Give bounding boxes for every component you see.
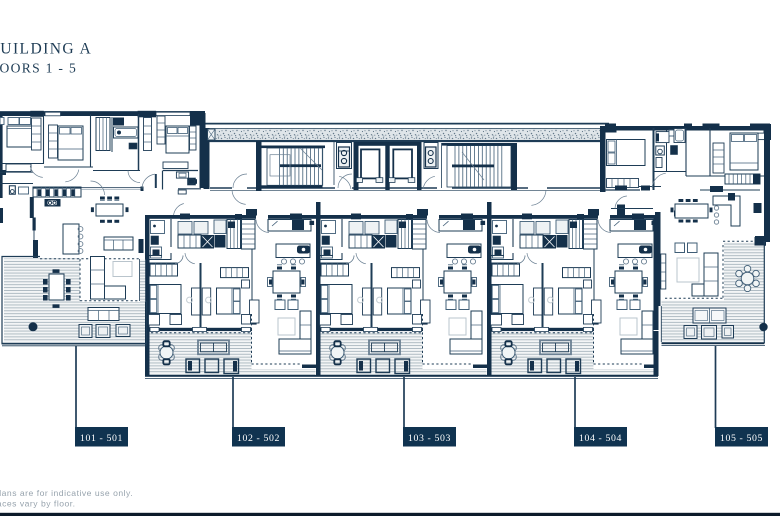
svg-text:Plans are for indicative use o: Plans are for indicative use only.	[0, 488, 133, 498]
svg-text:FLOORS 1 - 5: FLOORS 1 - 5	[0, 61, 77, 76]
svg-text:104 - 504: 104 - 504	[579, 433, 622, 444]
svg-text:105 - 505: 105 - 505	[720, 433, 763, 444]
svg-text:BUILDING A: BUILDING A	[0, 41, 92, 58]
svg-text:103 - 503: 103 - 503	[408, 433, 451, 444]
svg-text:Terraces vary by floor.: Terraces vary by floor.	[0, 499, 76, 509]
svg-text:102 - 502: 102 - 502	[237, 433, 280, 444]
svg-text:101 - 501: 101 - 501	[80, 433, 123, 444]
